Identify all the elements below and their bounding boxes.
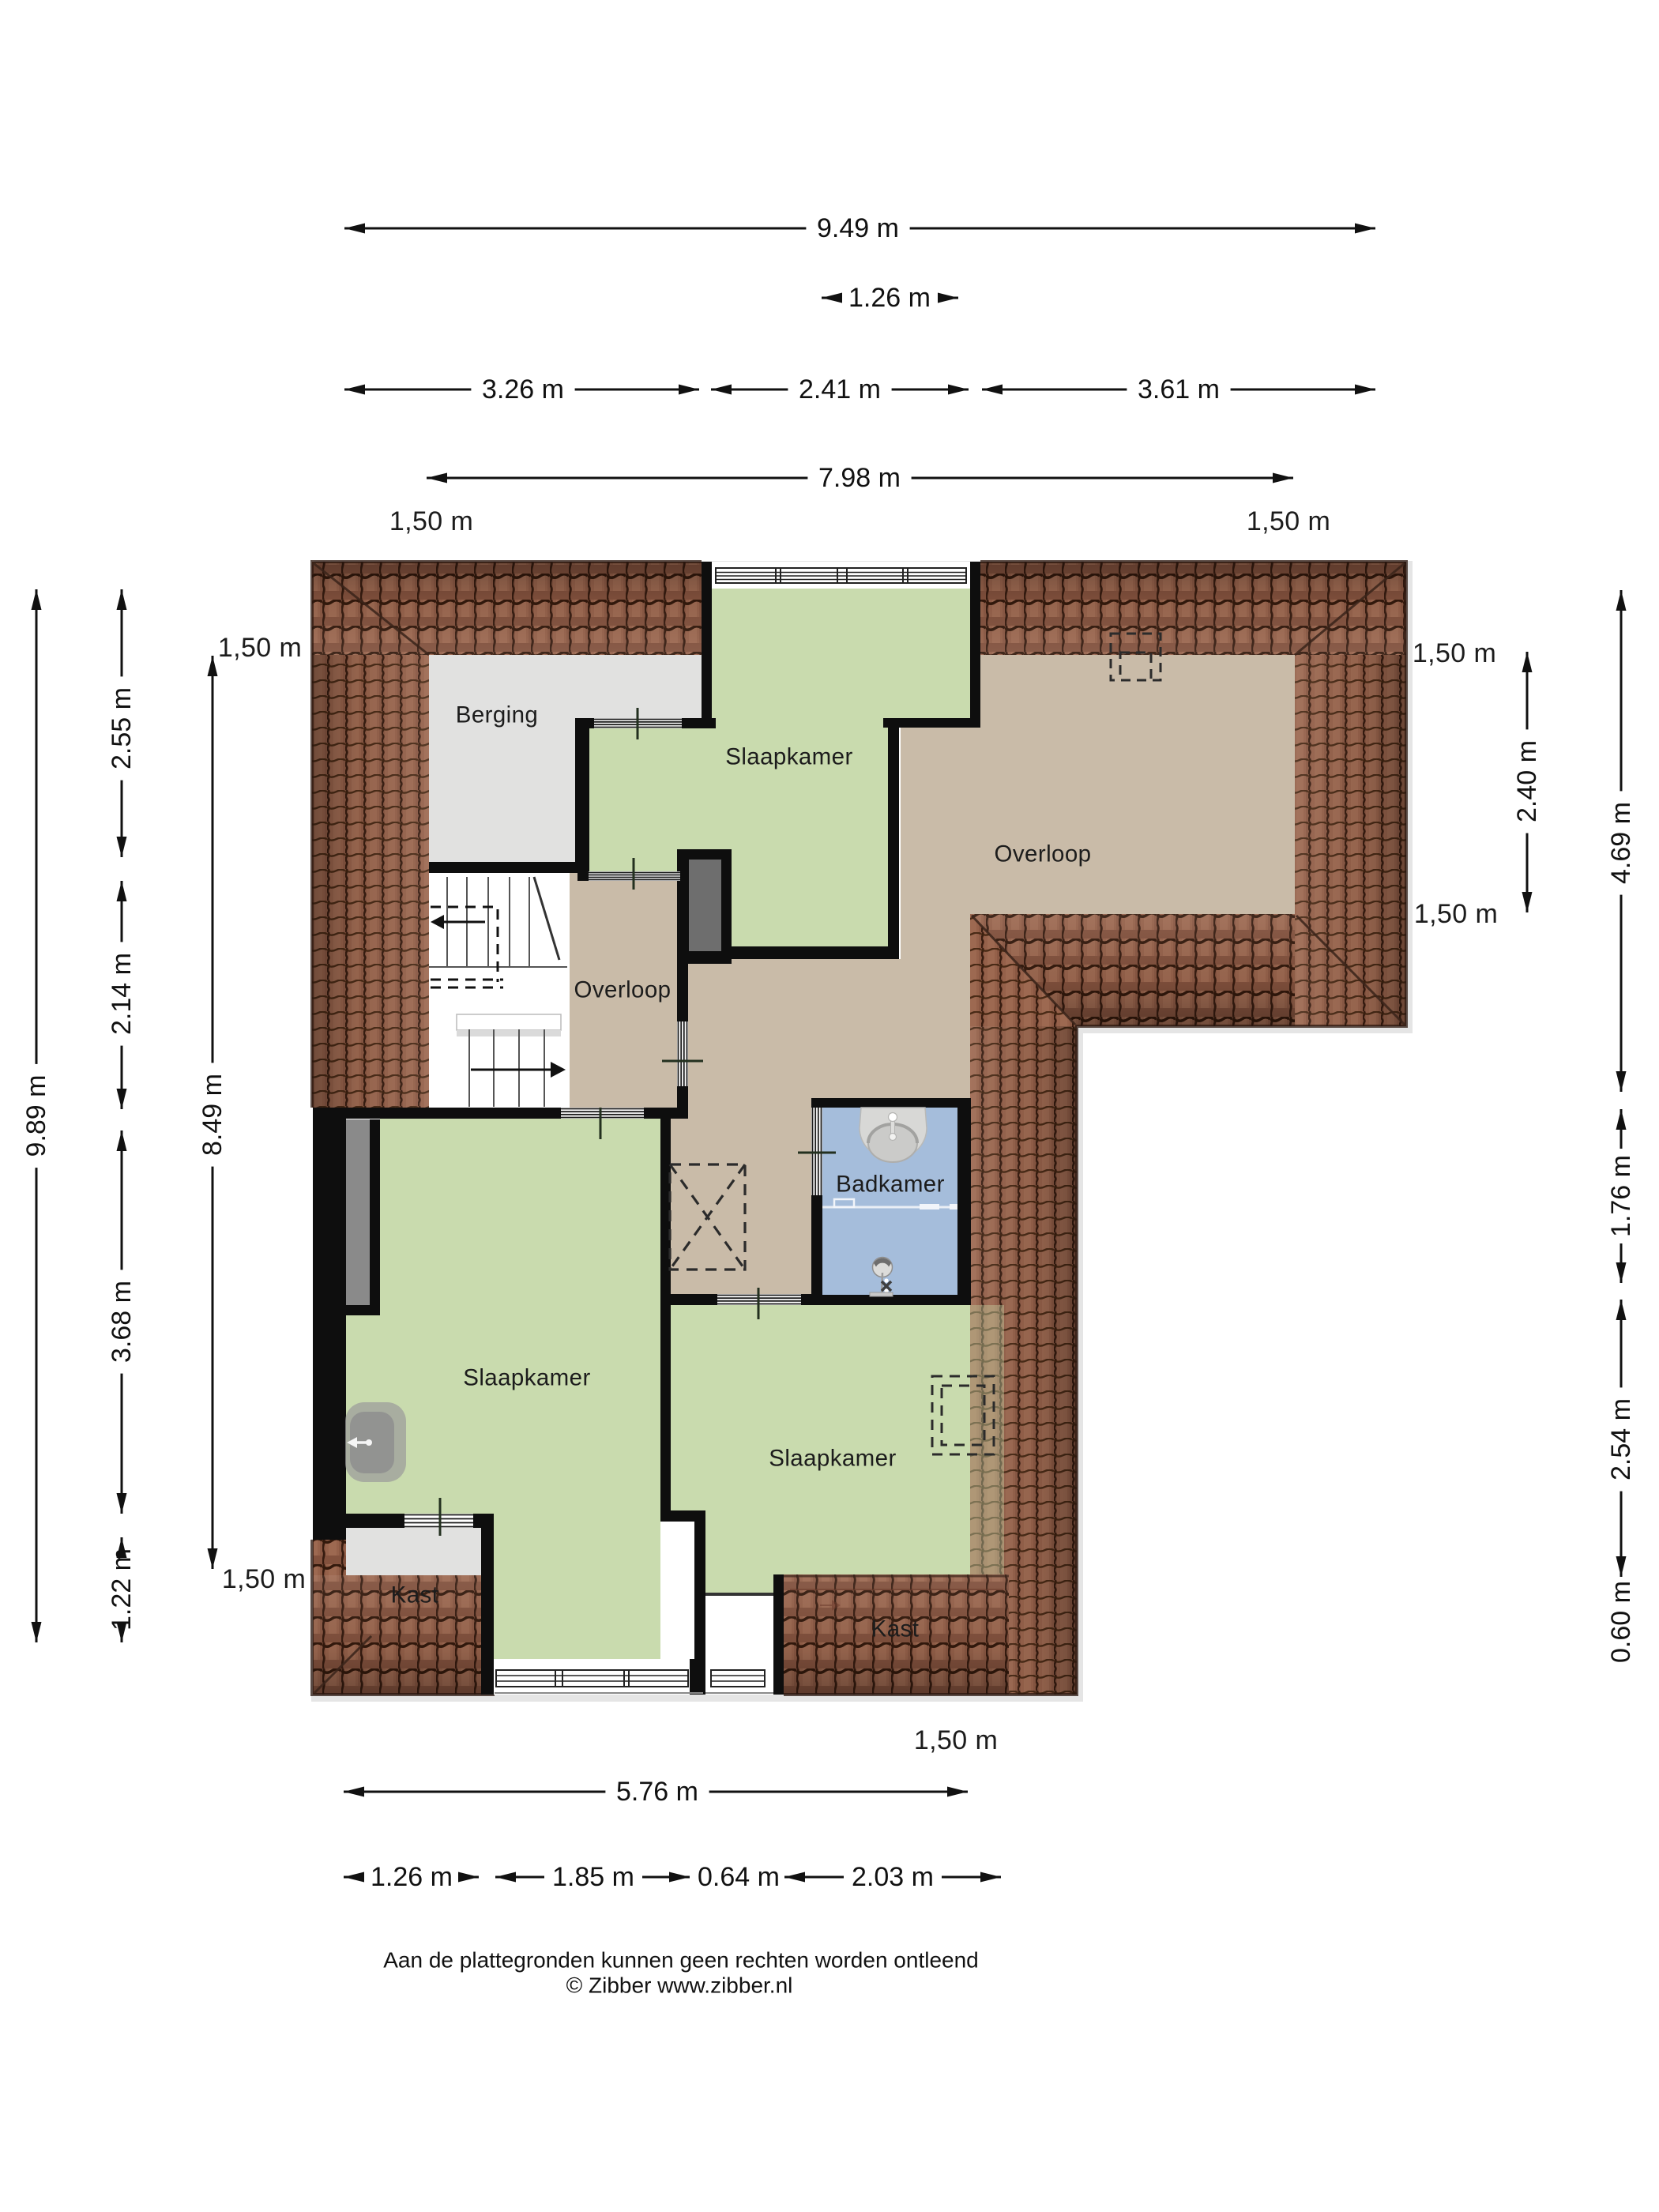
svg-text:9.49 m: 9.49 m: [817, 213, 899, 243]
svg-text:Kast: Kast: [391, 1582, 439, 1608]
svg-text:1.22 m: 1.22 m: [107, 1548, 137, 1631]
svg-text:Slaapkamer: Slaapkamer: [725, 744, 852, 770]
svg-text:2.03 m: 2.03 m: [852, 1862, 934, 1892]
svg-text:Berging: Berging: [456, 702, 538, 728]
svg-text:2.54 m: 2.54 m: [1606, 1398, 1636, 1480]
svg-text:1.26 m: 1.26 m: [848, 283, 931, 313]
svg-text:4.69 m: 4.69 m: [1606, 802, 1636, 884]
svg-text:2.55 m: 2.55 m: [107, 687, 137, 769]
svg-text:1,50 m: 1,50 m: [1247, 506, 1330, 536]
svg-text:1.26 m: 1.26 m: [371, 1862, 453, 1892]
svg-text:1,50 m: 1,50 m: [1413, 638, 1496, 668]
svg-text:1,50 m: 1,50 m: [218, 633, 302, 663]
svg-text:3.61 m: 3.61 m: [1138, 374, 1220, 404]
svg-text:Kast: Kast: [871, 1616, 920, 1642]
svg-text:Slaapkamer: Slaapkamer: [769, 1446, 896, 1472]
svg-text:0.60 m: 0.60 m: [1606, 1581, 1636, 1663]
svg-text:3.68 m: 3.68 m: [107, 1281, 137, 1363]
svg-text:2.14 m: 2.14 m: [107, 953, 137, 1035]
svg-text:Overloop: Overloop: [574, 977, 671, 1003]
svg-text:1.85 m: 1.85 m: [552, 1862, 634, 1892]
svg-text:© Zibber www.zibber.nl: © Zibber www.zibber.nl: [566, 1973, 793, 1998]
svg-text:1,50 m: 1,50 m: [1414, 899, 1498, 929]
svg-text:Slaapkamer: Slaapkamer: [463, 1365, 590, 1391]
svg-text:2.41 m: 2.41 m: [799, 374, 881, 404]
svg-text:9.89 m: 9.89 m: [21, 1075, 51, 1157]
svg-text:1,50 m: 1,50 m: [222, 1564, 306, 1594]
svg-text:Aan de plattegronden kunnen ge: Aan de plattegronden kunnen geen rechten…: [383, 1948, 978, 1973]
svg-text:1.76 m: 1.76 m: [1606, 1155, 1636, 1237]
svg-text:Overloop: Overloop: [995, 841, 1092, 867]
svg-text:2.40 m: 2.40 m: [1512, 740, 1542, 822]
svg-text:1,50 m: 1,50 m: [389, 506, 473, 536]
svg-text:5.76 m: 5.76 m: [616, 1777, 698, 1807]
svg-text:3.26 m: 3.26 m: [482, 374, 564, 404]
svg-text:Badkamer: Badkamer: [836, 1172, 945, 1198]
svg-text:0.64 m: 0.64 m: [698, 1862, 780, 1892]
svg-text:7.98 m: 7.98 m: [818, 463, 901, 493]
svg-text:1,50 m: 1,50 m: [914, 1725, 998, 1755]
svg-text:8.49 m: 8.49 m: [197, 1074, 228, 1156]
